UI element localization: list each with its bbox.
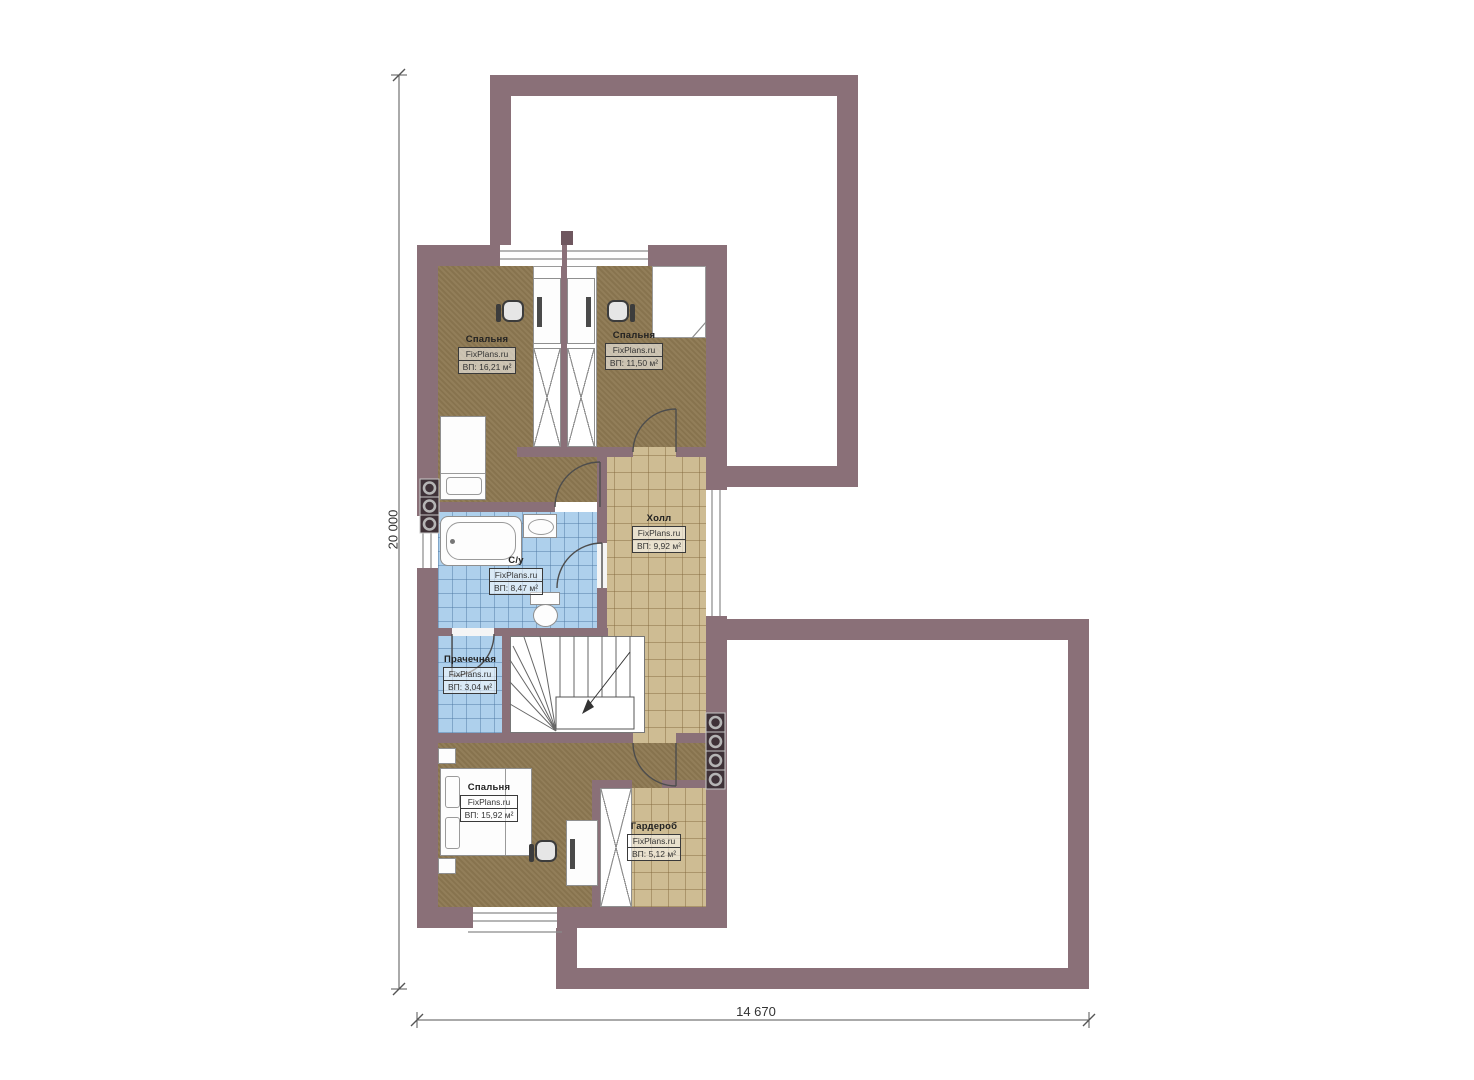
floor-plan-canvas: Спальня FixPlans.ru ВП: 16,21 м² Спальня… (0, 0, 1474, 1080)
room-area: ВП: 3,04 м² (444, 681, 496, 693)
office-chair (502, 300, 524, 322)
room-area: ВП: 9,92 м² (633, 540, 685, 552)
door-bedroom-bottom (633, 743, 676, 786)
room-name: Прачечная (444, 654, 496, 665)
room-info-box: FixPlans.ru ВП: 15,92 м² (460, 795, 519, 822)
room-label-bathroom: С/у FixPlans.ru ВП: 8,47 м² (466, 555, 566, 595)
room-area: ВП: 16,21 м² (459, 361, 516, 373)
room-name: Спальня (613, 330, 655, 341)
monitor (570, 839, 575, 869)
room-info-box: FixPlans.ru ВП: 9,92 м² (632, 526, 686, 553)
bathtub-drain (450, 539, 455, 544)
room-name: С/у (508, 555, 523, 566)
room-label-laundry: Прачечная FixPlans.ru ВП: 3,04 м² (420, 654, 520, 694)
room-info-box: FixPlans.ru ВП: 8,47 м² (489, 568, 543, 595)
watermark: FixPlans.ru (490, 569, 542, 582)
nightstand (438, 858, 456, 874)
bed-fold-line (441, 473, 485, 474)
toilet-bowl (533, 604, 558, 627)
chair-back (630, 304, 635, 322)
room-name: Гардероб (631, 821, 678, 832)
watermark: FixPlans.ru (461, 796, 518, 809)
toilet (529, 592, 561, 628)
desk (533, 278, 561, 344)
office-chair (535, 840, 557, 862)
door-bedroom-top-left (555, 462, 600, 507)
watermark: FixPlans.ru (606, 344, 662, 357)
room-info-box: FixPlans.ru ВП: 3,04 м² (443, 667, 497, 694)
bed (440, 416, 486, 500)
dimension-width: 14 670 (722, 1004, 790, 1019)
dimension-height: 20 000 (386, 499, 401, 561)
watermark: FixPlans.ru (459, 348, 516, 361)
room-label-bedroom-bottom: Спальня FixPlans.ru ВП: 15,92 м² (439, 782, 539, 822)
monitor (586, 297, 591, 327)
desk (566, 820, 598, 886)
door-bedroom-top-right (633, 409, 676, 452)
chair-back (496, 304, 501, 322)
room-label-bedroom-top-left: Спальня FixPlans.ru ВП: 16,21 м² (437, 334, 537, 374)
office-chair (607, 300, 629, 322)
room-label-hall: Холл FixPlans.ru ВП: 9,92 м² (609, 513, 709, 553)
room-label-wardrobe: Гардероб FixPlans.ru ВП: 5,12 м² (604, 821, 704, 861)
vent-grille-left (420, 479, 439, 533)
room-info-box: FixPlans.ru ВП: 11,50 м² (605, 343, 663, 370)
room-area: ВП: 5,12 м² (628, 848, 680, 860)
room-name: Спальня (468, 782, 510, 793)
room-info-box: FixPlans.ru ВП: 16,21 м² (458, 347, 517, 374)
nightstand (438, 748, 456, 764)
niche-fold-line (692, 322, 706, 338)
sink-basin (528, 519, 554, 535)
vent-grille-right (706, 713, 725, 789)
wardrobe-cabinet (533, 348, 561, 447)
room-label-bedroom-top-right: Спальня FixPlans.ru ВП: 11,50 м² (584, 330, 684, 370)
plan-linework (0, 0, 1474, 1080)
room-area: ВП: 8,47 м² (490, 582, 542, 594)
pillow (446, 477, 482, 495)
room-area: ВП: 15,92 м² (461, 809, 518, 821)
sink (523, 514, 557, 538)
room-name: Спальня (466, 334, 508, 345)
staircase (510, 636, 634, 731)
monitor (537, 297, 542, 327)
room-name: Холл (647, 513, 672, 524)
watermark: FixPlans.ru (628, 835, 680, 848)
room-area: ВП: 11,50 м² (606, 357, 662, 369)
room-info-box: FixPlans.ru ВП: 5,12 м² (627, 834, 681, 861)
watermark: FixPlans.ru (633, 527, 685, 540)
watermark: FixPlans.ru (444, 668, 496, 681)
chair-back (529, 844, 534, 862)
